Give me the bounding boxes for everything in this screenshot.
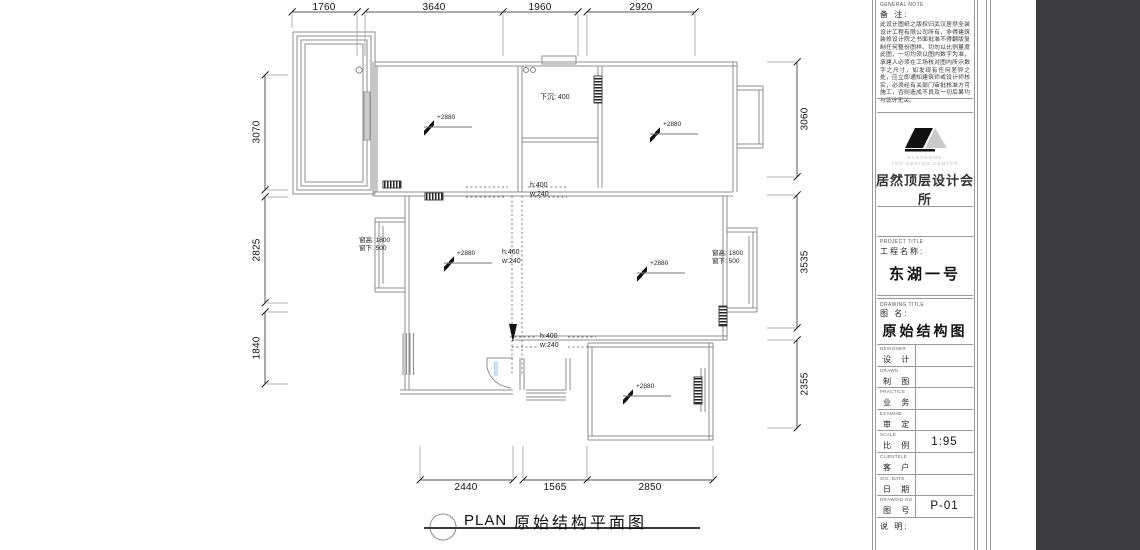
drawing-name: 原始结构图 [873,321,977,341]
general-note-label-cn: 备 注: [880,9,908,20]
scale-value: 1:95 [915,431,973,452]
sliding-door-panel [364,92,370,140]
plan-title-cn: 原始结构平面图 [514,509,647,533]
window-left-sill: 窗下: 500 [359,245,390,253]
viewer-background [1036,0,1140,550]
beam-bot-w: w:240 [540,341,559,350]
walls [373,56,737,440]
elevation-label-3: +2880 [457,250,475,257]
door-swing [487,358,513,388]
window-right-height: 窗高: 1800 [712,250,743,258]
dim-right-2: 3535 [800,250,811,273]
annotation-sunken: 下沉: 400 [540,93,570,102]
row-label-en: EXAMINE [880,411,902,416]
sheet-edge-line [986,0,987,550]
beam-top-w: w:240 [530,190,549,199]
row-label-cn: 日 期 [883,484,913,495]
row-label-en: SIG. DATE [880,476,905,481]
row-label-cn: 制 图 [883,376,913,387]
row-value [915,410,973,431]
annotation-beam-top: h:400 w:240 [530,181,549,199]
brand-tagline: TOP DESIGN CENTER [873,161,977,166]
dim-right-3: 2355 [800,372,811,395]
title-block: GENERAL NOTE 备 注: 此设计图纸之版权归武汉居然全装设计工程有限公… [872,0,978,550]
dim-top-4: 2920 [629,2,652,13]
row-scale: SCALE 比 例 1:95 [877,431,973,453]
general-note-text: 此设计图纸之版权归武汉居然全装设计工程有限公司所有，非得建筑装修设计院之书面批准… [880,22,970,106]
dim-top-1: 1760 [312,2,335,13]
row-value [915,453,973,474]
row-practice: PRACTICE 业 务 [877,388,973,410]
extension-lines [267,14,795,478]
row-value [915,475,973,496]
dimension-ticks [262,9,801,484]
plan-title-en: PLAN [464,512,507,529]
row-label-en: DRAWING NO. [880,497,914,502]
general-note-label-en: GENERAL NOTE [880,2,924,8]
drawing-title-label-cn: 图 名: [880,308,908,319]
row-value [915,367,973,388]
dim-bottom-3: 2850 [638,482,661,493]
divider [877,236,973,237]
dim-bottom-2: 1565 [543,482,566,493]
door-leaf-blue [494,362,497,375]
elevation-label-4: +2880 [650,260,668,267]
divider [877,206,973,207]
dimension-lines [265,12,797,480]
project-title-label-cn: 工程名称: [880,246,924,257]
project-name: 东湖一号 [873,263,977,284]
divider [877,112,973,113]
sheet-edge-line [990,0,991,550]
remark-label: 说 明: [880,521,908,532]
beam-mid-h: h:460 [502,248,521,257]
row-drawing-no: DRAWING NO. 图 号 P-01 [877,496,973,518]
row-drawn: DRAWN 制 图 [877,367,973,389]
row-value [915,345,973,366]
row-label-en: PRACTICE [880,389,905,394]
row-label-en: CLIENTELE [880,454,907,459]
row-label-en: DRAWN [880,368,898,373]
row-label-cn: 比 例 [883,440,913,451]
row-label-cn: 审 定 [883,419,913,430]
dim-left-3: 1840 [252,336,263,359]
pipe-circles [356,67,536,73]
project-title-label-en: PROJECT TITLE [880,239,923,245]
annotation-beam-mid: h:460 w:240 [502,248,521,266]
divider [877,98,973,99]
elevation-label-2: +2880 [663,121,681,128]
row-label-cn: 图 号 [883,505,913,516]
drawing-number: P-01 [915,496,973,517]
beam-dashed-lines [466,187,596,375]
elevation-label-1: +2880 [437,114,455,121]
beam-black-wedge [509,324,517,342]
row-label-cn: 客 户 [883,462,913,473]
row-label-cn: 业 务 [883,397,913,408]
row-label-en: DESIGNER [880,346,906,351]
window-right-sill: 窗下: 500 [712,258,743,266]
row-designer: DESIGNER 设 计 [877,345,973,367]
annotation-window-right: 窗高: 1800 窗下: 500 [712,250,743,266]
company-name: 居然顶层设计会所 [873,170,977,208]
beam-top-h: h:400 [530,181,549,190]
beam-bot-h: h:400 [540,332,559,341]
cad-floorplan-sheet: 1760 3640 1960 2920 3070 2825 1840 3060 … [0,0,1140,550]
divider [877,295,973,296]
dim-right-1: 3060 [800,107,811,130]
window-left-height: 窗高: 1800 [359,237,390,245]
row-clientele: CLIENTELE 客 户 [877,453,973,475]
annotation-window-left: 窗高: 1800 窗下: 500 [359,237,390,253]
elevation-label-5: +2880 [636,383,654,390]
dim-bottom-1: 2440 [454,482,477,493]
beam-mid-w: w:240 [502,257,521,266]
annotation-beam-bottom: h:400 w:240 [540,332,559,350]
row-label-cn: 设 计 [883,354,913,365]
row-sig-date: SIG. DATE 日 期 [877,475,973,497]
balcony-window-frames [293,32,375,194]
dim-top-2: 3640 [422,2,445,13]
row-examine: EXAMINE 审 定 [877,410,973,432]
dim-left-1: 3070 [252,120,263,143]
dim-top-3: 1960 [528,2,551,13]
divider [877,298,973,299]
dim-left-2: 2825 [252,238,263,261]
company-logo-icon [905,126,965,156]
row-label-en: SCALE [880,432,896,437]
row-value [915,388,973,409]
titleblock-table: DESIGNER 设 计 DRAWN 制 图 PRACTICE 业 务 EXAM… [877,344,973,518]
brand-name: EASYHOME [873,155,977,160]
